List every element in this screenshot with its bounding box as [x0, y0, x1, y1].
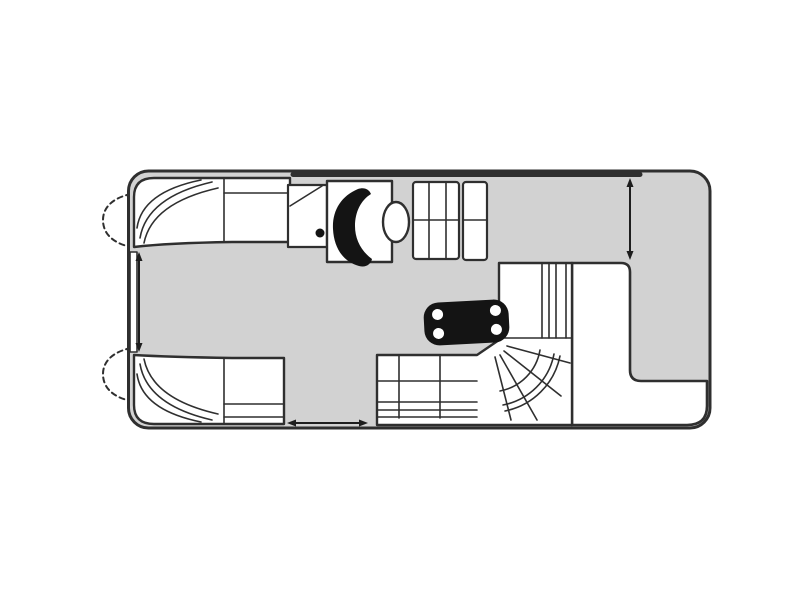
bow-gate-opening [130, 252, 137, 352]
cup-holder-icon [316, 229, 325, 238]
floor-plan-canvas [0, 0, 800, 600]
pontoon-floor-plan [0, 0, 800, 600]
galley-unit [413, 182, 487, 260]
bow-bench-port [134, 355, 284, 424]
cocktail-table [423, 299, 510, 346]
privacy-console [288, 185, 327, 247]
bow-bench-starboard [134, 178, 290, 247]
captain-seat [383, 202, 409, 242]
